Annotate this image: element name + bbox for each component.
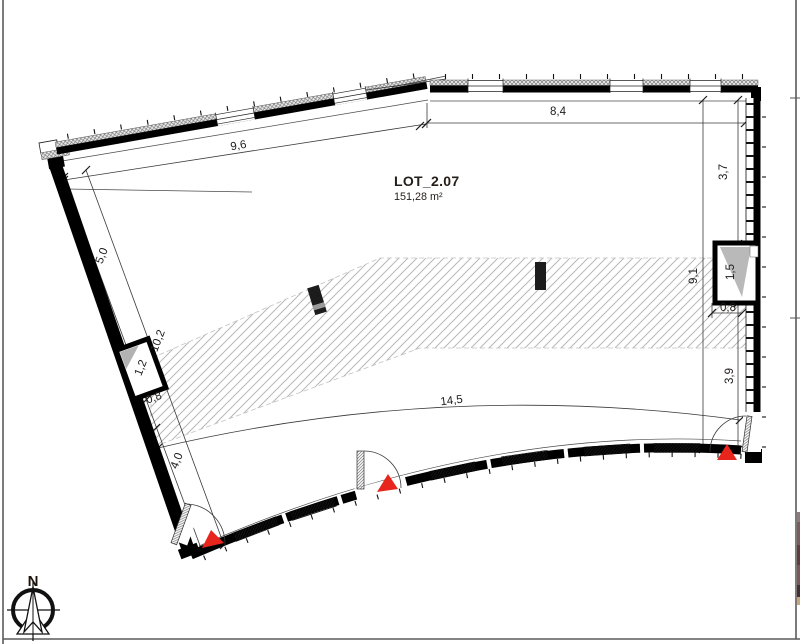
dim-left-upper: 5,0 — [94, 246, 111, 265]
window-opening — [468, 79, 503, 94]
dim-top-wall: 8,4 — [550, 106, 567, 118]
glazing-segment — [233, 444, 700, 542]
north-compass: N — [7, 573, 60, 641]
window-opening — [215, 106, 255, 126]
lot-area: 151,28 m² — [394, 191, 443, 203]
window-opening — [333, 86, 368, 105]
dim-top-left-wall: 9,6 — [230, 139, 248, 154]
dim-right-shaft: 1,5 — [725, 264, 737, 280]
window-opening — [690, 79, 721, 94]
window-opening — [610, 79, 643, 94]
dim-right-total: 9,1 — [688, 268, 700, 284]
column — [535, 262, 546, 290]
lot-label: LOT_2.07 151,28 m² — [394, 173, 459, 203]
floor-plan-drawing: LOT_2.07 151,28 m² 9,6 8,4 3,7 9,1 1,5 0… — [0, 0, 800, 644]
dim-left-lower: 4,0 — [169, 451, 186, 470]
dim-right-lower: 3,9 — [724, 368, 736, 384]
dim-right-shaft-depth: 0,8 — [720, 302, 736, 314]
lot-title: LOT_2.07 — [394, 173, 459, 189]
floor-plan-screenshot: LOT_2.07 151,28 m² 9,6 8,4 3,7 9,1 1,5 0… — [0, 0, 800, 644]
dim-left-total: 10,2 — [149, 328, 168, 353]
dim-right-upper: 3,7 — [718, 164, 730, 180]
hatch-zone — [150, 258, 755, 448]
